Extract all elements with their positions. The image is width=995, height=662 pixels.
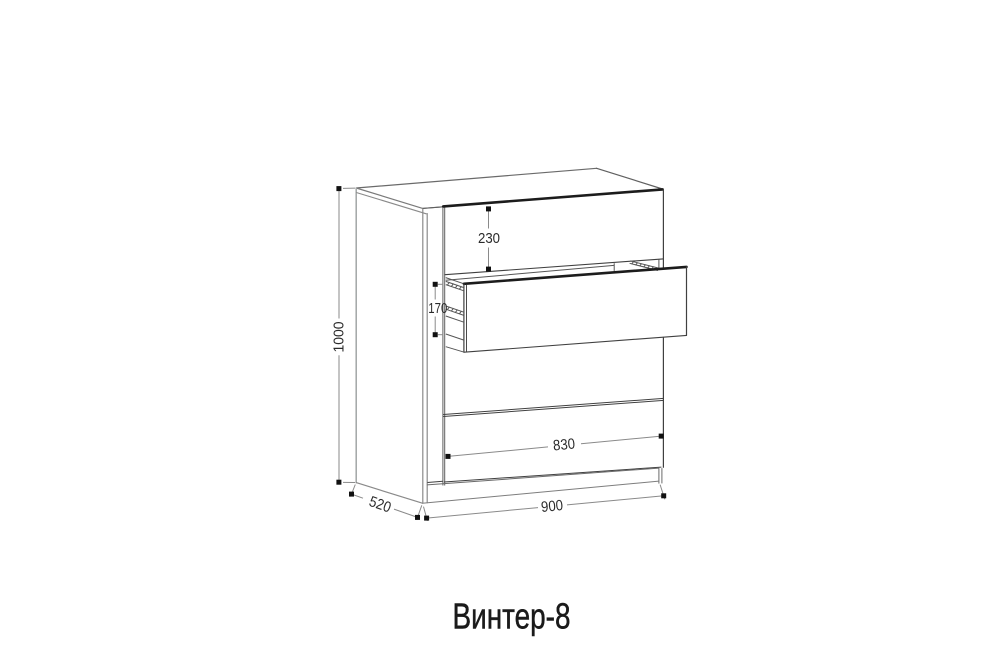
svg-text:170: 170 [428,300,447,317]
svg-text:830: 830 [552,436,576,455]
svg-text:Винтер-8: Винтер-8 [453,595,571,636]
svg-text:900: 900 [540,497,564,516]
svg-text:1000: 1000 [331,322,348,353]
svg-text:230: 230 [478,230,500,247]
